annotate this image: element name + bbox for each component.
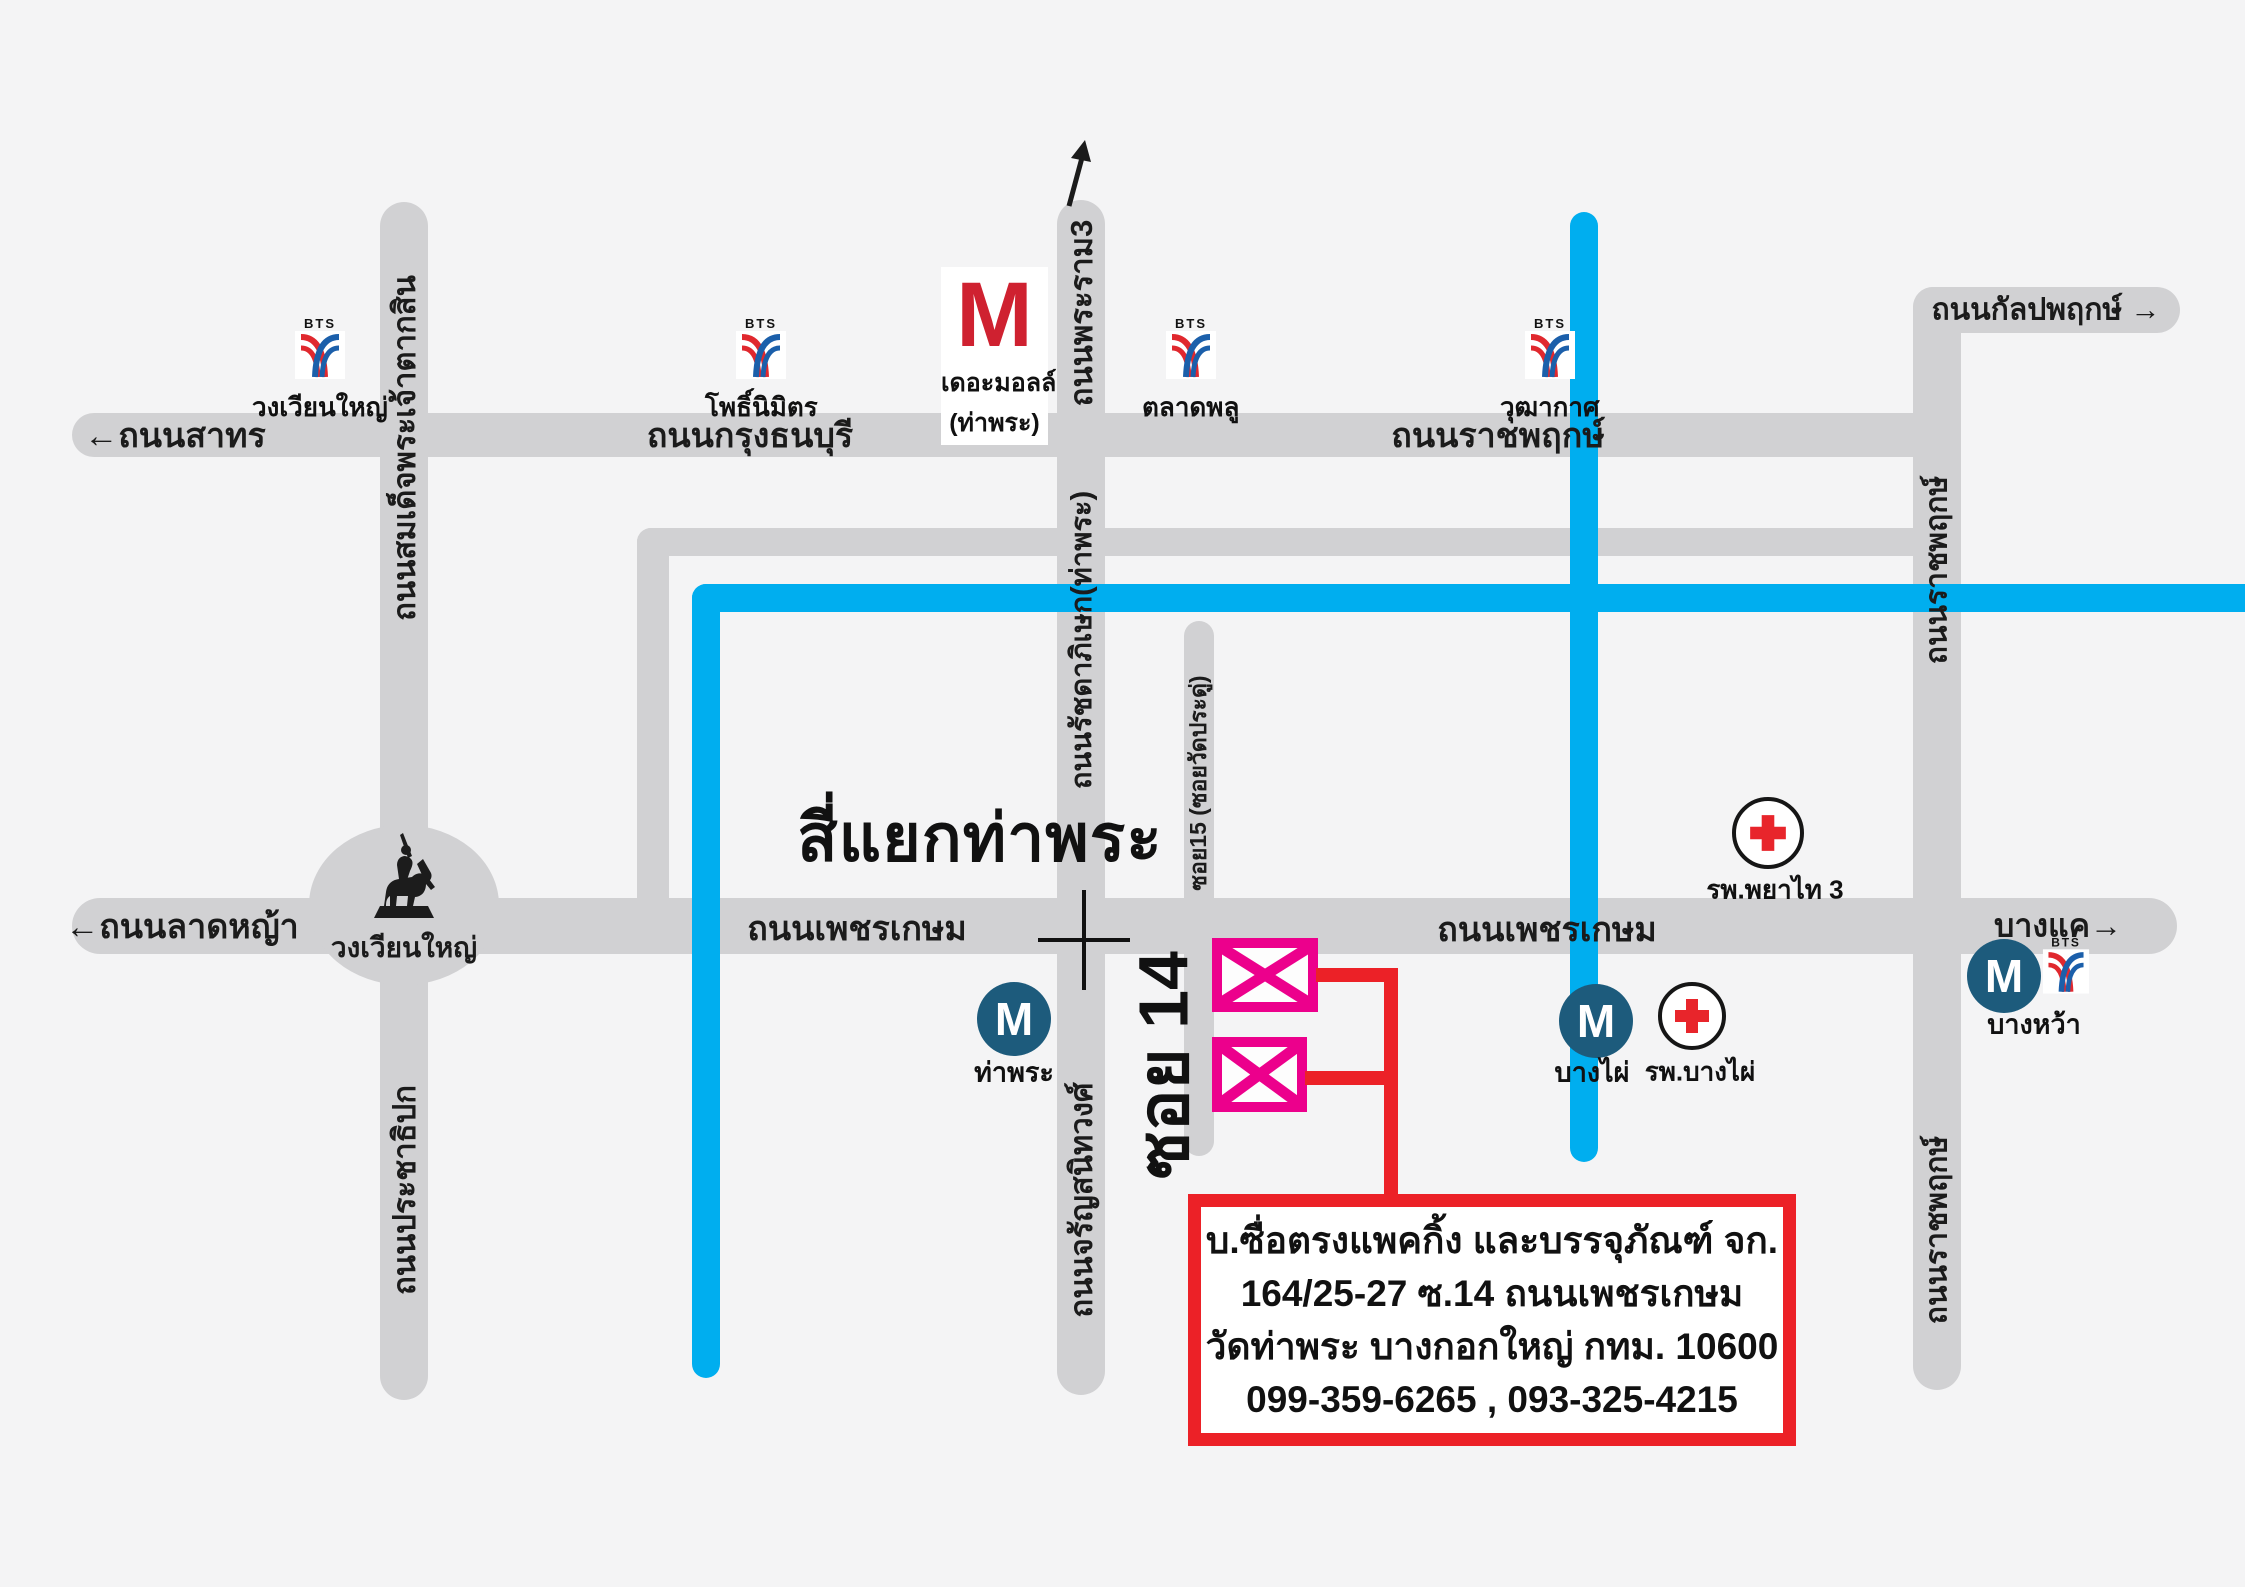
road-label-rama3: ถนนพระราม3 — [1056, 220, 1106, 407]
taksin-statue-icon — [352, 828, 456, 920]
mall-branch: (ท่าพระ) — [941, 403, 1048, 443]
bts-station-wutthakat: BTS วุฒากาศ — [1500, 316, 1600, 428]
road-secondary-horizontal — [637, 528, 1914, 556]
building-marker-1 — [1212, 938, 1318, 1012]
mrt-logo-icon: M — [977, 982, 1051, 1056]
bts-logo-icon: BTS — [735, 316, 787, 380]
road-label-latya-text: ถนนลาดหญ้า — [99, 908, 299, 946]
bts-logo-icon: BTS — [1524, 316, 1576, 380]
roundabout-label: วงเวียนใหญ่ — [331, 926, 477, 970]
mrt-letter: M — [995, 992, 1033, 1046]
mall-m-logo-icon: M — [941, 267, 1048, 363]
road-label-sathorn-text: ถนนสาทร — [118, 417, 266, 455]
intersection-title: สี่แยกท่าพระ — [797, 786, 1162, 891]
svg-text:BTS: BTS — [2051, 936, 2081, 950]
road-label-latya: ←ถนนลาดหญ้า — [65, 899, 299, 953]
bts-logo-icon: BTS — [1165, 316, 1217, 380]
mrt-station-bangphai-label: บางไผ่ — [1555, 1051, 1630, 1094]
road-label-phetkasem-east-text: ถนนเพชรเกษม — [1437, 911, 1656, 949]
road-label-ratchaphruek-lower: ถนนราชพฤกษ์ — [1914, 1136, 1961, 1324]
building-marker-2 — [1212, 1037, 1307, 1112]
mrt-station-thaphra-label: ท่าพระ — [974, 1051, 1054, 1094]
mrt-letter: M — [1577, 994, 1615, 1048]
x-marker-icon — [1222, 948, 1308, 1002]
map-canvas: ←ถนนสาทร ถนนกรุงธนบุรี ถนนราชพฤกษ์ ถนนกั… — [0, 0, 2245, 1587]
svg-text:BTS: BTS — [1534, 316, 1566, 331]
hospital-cross-icon — [1732, 797, 1804, 869]
bts-station-phonimit: BTS โพธิ์นิมิตร — [705, 316, 818, 428]
crosshair-icon — [1038, 938, 1130, 942]
road-label-charansanitwong: ถนนจรัญสนิทวงศ์ — [1056, 1082, 1106, 1317]
bts-station-bangwa: BTS — [2042, 935, 2090, 1000]
road-label-phetkasem-west: ถนนเพชรเกษม — [747, 901, 966, 955]
company-name: บ.ซื่อตรงแพคกิ้ง และบรรจุภัณฑ์ จก. — [1201, 1214, 1783, 1267]
road-label-soi15: ซอย15 (ซอยวัดประดู่) — [1181, 675, 1217, 890]
arrow-left-icon: ← — [84, 417, 118, 455]
road-label-kanlapaphruek: ถนนกัลปพฤกษ์ → — [1932, 287, 2161, 334]
bts-station-wongwianyai: BTS วงเวียนใหญ่ — [252, 316, 388, 428]
hospital-cross-icon — [1658, 982, 1726, 1050]
svg-text:BTS: BTS — [745, 316, 777, 331]
phone-numbers: 099-359-6265 , 093-325-4215 — [1201, 1373, 1783, 1426]
arrow-right-icon: → — [2131, 294, 2161, 327]
address-line: วัดท่าพระ บางกอกใหญ่ กทม. 10600 — [1201, 1320, 1783, 1373]
mrt-logo-icon: M — [1559, 984, 1633, 1058]
station-label: วุฒากาศ — [1500, 387, 1600, 428]
road-label-phetkasem-east: ถนนเพชรเกษม — [1437, 902, 1656, 956]
canal-line-horizontal — [692, 584, 2245, 612]
road-label-phetkasem-west-text: ถนนเพชรเกษม — [747, 910, 966, 948]
canal-line-vertical-west — [692, 584, 720, 1378]
road-label-soi14: ซอย 14 — [1108, 951, 1219, 1179]
bts-logo-icon: BTS — [2042, 935, 2090, 995]
road-label-kanlapaphruek-text: ถนนกัลปพฤกษ์ — [1932, 294, 2123, 327]
station-label: โพธิ์นิมิตร — [705, 387, 818, 428]
x-marker-icon — [1222, 1047, 1297, 1102]
address-line: 164/25-27 ซ.14 ถนนเพชรเกษม — [1201, 1267, 1783, 1320]
station-label: วงเวียนใหญ่ — [252, 387, 388, 428]
mrt-letter: M — [1985, 949, 2023, 1003]
address-info-box: บ.ซื่อตรงแพคกิ้ง และบรรจุภัณฑ์ จก. 164/2… — [1188, 1194, 1796, 1446]
bts-logo-icon: BTS — [294, 316, 346, 380]
road-label-prachathipok: ถนนประชาธิปก — [379, 1085, 429, 1295]
road-label-ratchaphruek-upper: ถนนราชพฤกษ์ — [1914, 476, 1961, 664]
arrow-up-icon — [1055, 138, 1099, 210]
station-label: ตลาดพลู — [1142, 387, 1239, 428]
road-label-sathorn: ←ถนนสาทร — [84, 408, 266, 462]
bts-station-talatphlu: BTS ตลาดพลู — [1142, 316, 1239, 428]
svg-text:BTS: BTS — [304, 316, 336, 331]
mall-name: เดอะมอลล์ — [941, 363, 1048, 403]
svg-text:BTS: BTS — [1175, 316, 1207, 331]
road-label-ratchadaphisek: ถนนรัชดาภิเษก(ท่าพระ) — [1058, 491, 1104, 789]
arrow-right-icon: → — [2090, 908, 2122, 944]
road-secondary-vertical — [637, 528, 669, 928]
the-mall-landmark: M เดอะมอลล์ (ท่าพระ) — [941, 267, 1048, 445]
arrow-left-icon: ← — [65, 908, 99, 946]
hospital-bangphai-label: รพ.บางไผ่ — [1645, 1052, 1755, 1093]
connector-line — [1384, 968, 1398, 1208]
station-bangwa-label: บางหว้า — [1987, 1003, 2081, 1046]
hospital-phayathai-label: รพ.พยาไท 3 — [1706, 870, 1843, 911]
